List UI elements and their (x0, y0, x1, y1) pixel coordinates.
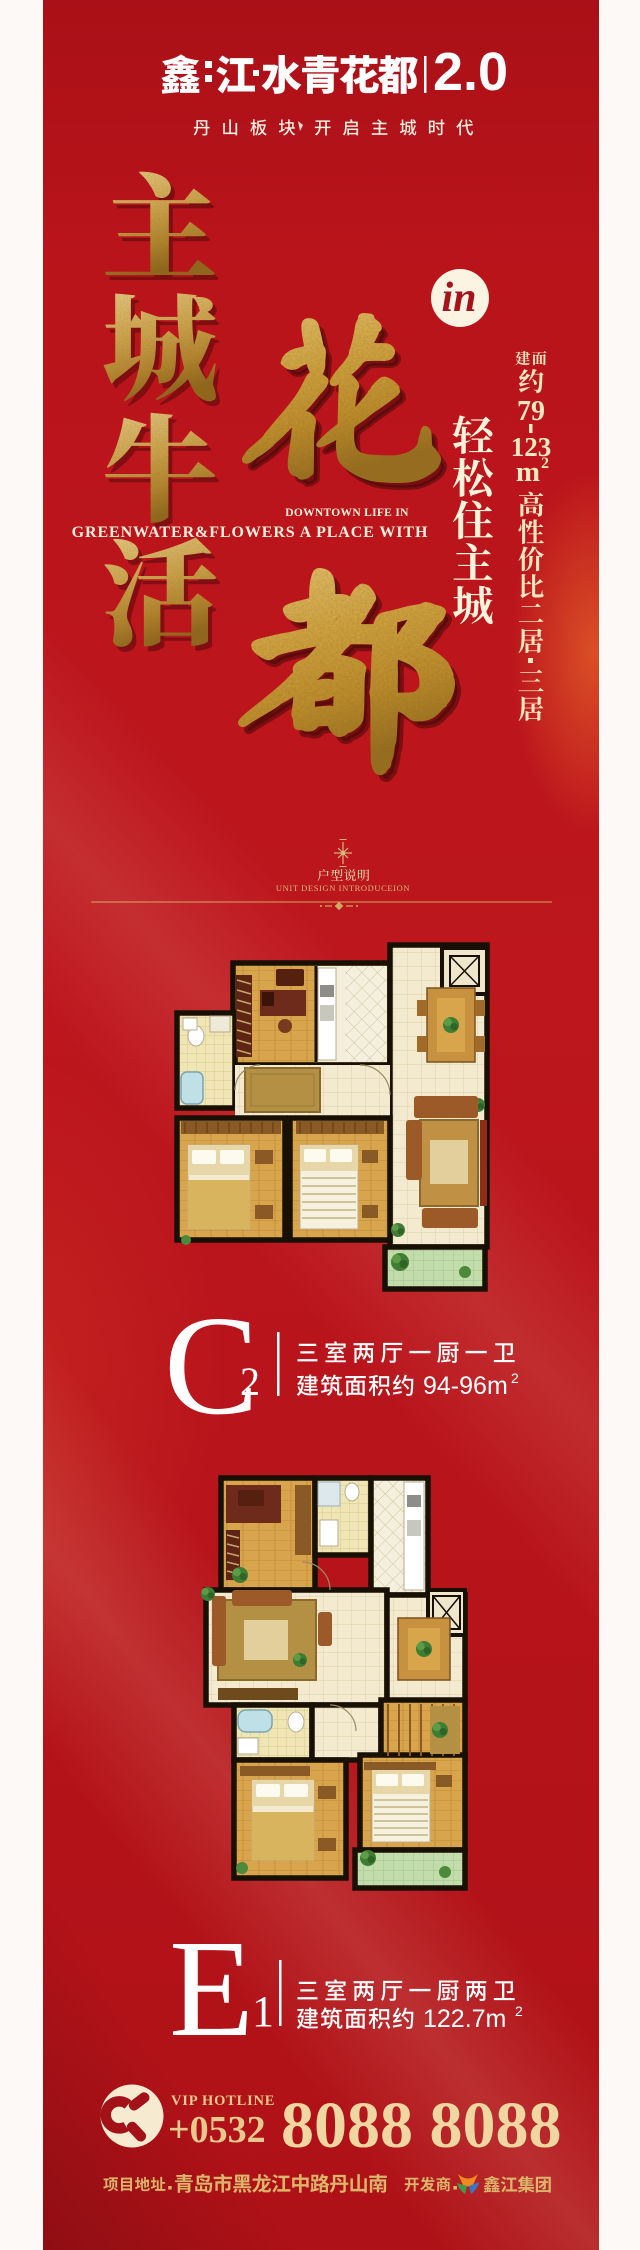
svg-text:8088 8088: 8088 8088 (281, 2089, 562, 2162)
svg-text:2: 2 (515, 2003, 523, 2019)
svg-text:m: m (516, 456, 540, 488)
svg-text:2: 2 (240, 1359, 260, 1404)
svg-text:DOWNTOWN LIFE IN: DOWNTOWN LIFE IN (285, 507, 409, 519)
svg-text:E: E (169, 1912, 254, 2066)
svg-text:GREENWATER&FLOWERS A PLACE WIT: GREENWATER&FLOWERS A PLACE WITH (72, 524, 429, 541)
svg-text:94-96m: 94-96m (423, 1372, 508, 1400)
svg-text:2: 2 (541, 455, 549, 472)
svg-text:VIP HOTLINE: VIP HOTLINE (171, 2093, 275, 2109)
svg-text:122.7m: 122.7m (423, 2005, 506, 2033)
svg-text:2.0: 2.0 (433, 42, 508, 102)
svg-text:in: in (441, 275, 476, 321)
svg-text:UNIT DESIGN INTRODUCEION: UNIT DESIGN INTRODUCEION (276, 883, 410, 893)
svg-text:1: 1 (252, 1987, 274, 2036)
svg-text:+0532: +0532 (168, 2109, 266, 2151)
svg-text:79: 79 (517, 396, 545, 427)
svg-text:2: 2 (511, 1370, 519, 1386)
